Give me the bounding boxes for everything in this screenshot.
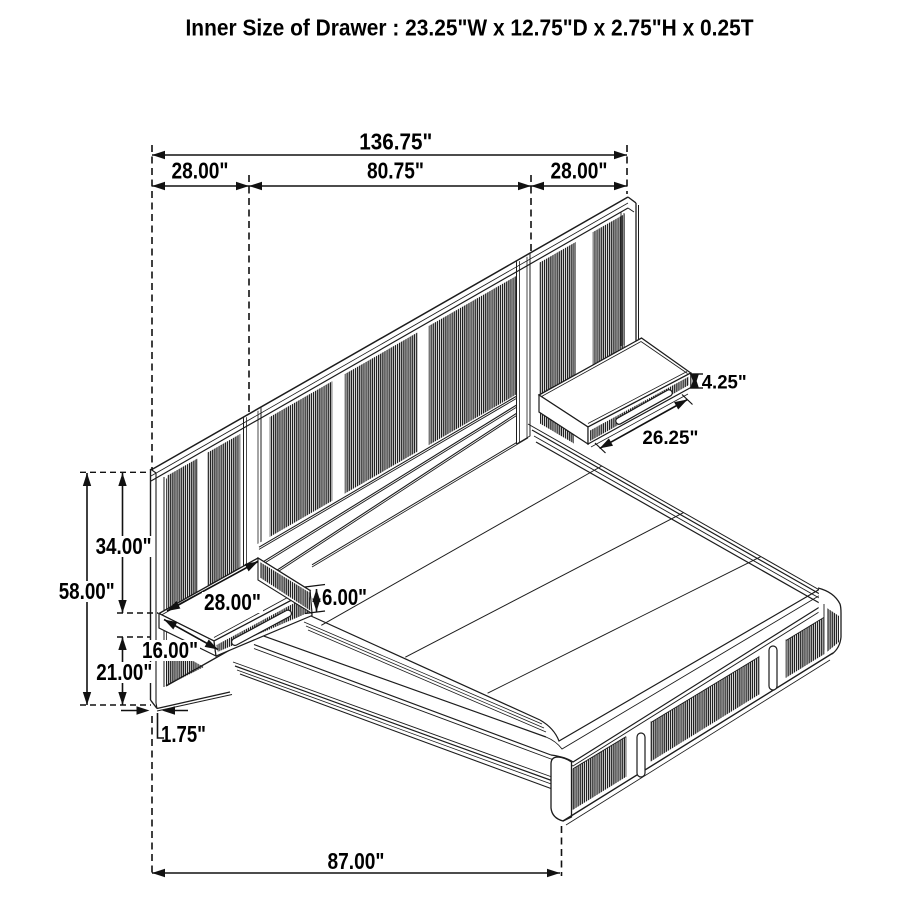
- svg-text:1.75": 1.75": [161, 721, 206, 747]
- svg-text:28.00": 28.00": [204, 589, 261, 615]
- svg-text:87.00": 87.00": [328, 848, 385, 874]
- svg-text:4.25": 4.25": [702, 371, 747, 393]
- svg-text:136.75": 136.75": [359, 129, 432, 155]
- svg-text:28.00": 28.00": [172, 157, 229, 183]
- svg-text:34.00": 34.00": [96, 533, 152, 559]
- svg-text:80.75": 80.75": [367, 157, 424, 183]
- svg-text:58.00": 58.00": [59, 578, 115, 604]
- svg-text:6.00": 6.00": [322, 584, 367, 610]
- svg-text:28.00": 28.00": [551, 157, 608, 183]
- svg-text:16.00": 16.00": [142, 637, 198, 663]
- svg-text:26.25": 26.25": [642, 427, 698, 449]
- svg-text:Inner Size of Drawer : 23.25"W: Inner Size of Drawer : 23.25"W x 12.75"D…: [186, 15, 754, 41]
